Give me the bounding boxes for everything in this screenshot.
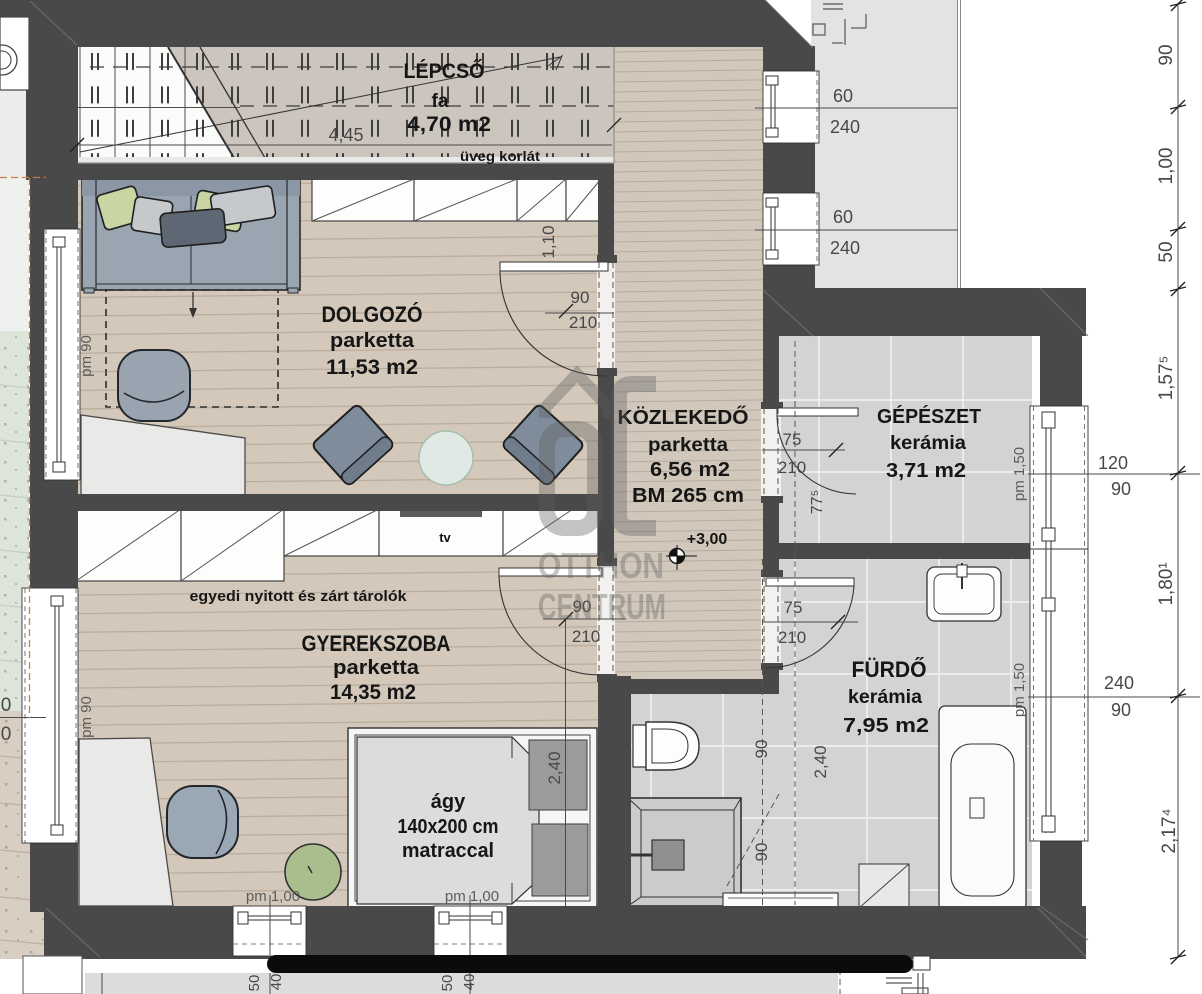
svg-text:7,95 m2: 7,95 m2 [843,715,929,737]
svg-text:BM 265 cm: BM 265 cm [632,485,744,507]
svg-text:kerámia: kerámia [848,687,922,708]
svg-text:DOLGOZÓ: DOLGOZÓ [322,302,423,327]
svg-text:75: 75 [783,430,802,449]
svg-text:CENTRUM: CENTRUM [538,586,666,627]
svg-text:parketta: parketta [333,657,420,679]
svg-text:4,70 m2: 4,70 m2 [407,113,491,136]
svg-text:140x200 cm: 140x200 cm [398,816,499,838]
svg-text:60: 60 [833,86,853,106]
svg-text:0: 0 [1,724,12,745]
svg-text:tv: tv [439,530,451,545]
svg-text:210: 210 [778,628,806,647]
svg-text:LÉPCSŐ: LÉPCSŐ [404,60,485,83]
svg-text:2,40: 2,40 [545,751,564,784]
svg-text:+3,00: +3,00 [687,531,728,548]
svg-text:2,17⁴: 2,17⁴ [1159,808,1180,853]
svg-text:60: 60 [833,207,853,227]
svg-text:14,35 m2: 14,35 m2 [330,681,416,704]
svg-text:90: 90 [752,843,771,862]
svg-text:90: 90 [1111,479,1131,499]
svg-text:40: 40 [268,974,285,991]
svg-text:77⁵: 77⁵ [809,490,826,514]
svg-text:210: 210 [778,458,806,477]
svg-text:240: 240 [830,238,860,258]
svg-text:pm 1,00: pm 1,00 [445,888,499,905]
svg-text:240: 240 [1104,673,1134,693]
svg-text:FÜRDŐ: FÜRDŐ [852,657,927,682]
svg-text:pm 90: pm 90 [78,335,95,377]
svg-text:parketta: parketta [648,435,728,456]
svg-text:90: 90 [1156,44,1177,65]
svg-text:50: 50 [1156,241,1177,262]
svg-text:1,10: 1,10 [539,225,558,258]
svg-text:kerámia: kerámia [890,433,966,454]
svg-text:parketta: parketta [330,330,415,352]
svg-text:210: 210 [569,313,597,332]
svg-text:fa: fa [432,91,449,112]
svg-text:GYEREKSZOBA: GYEREKSZOBA [302,631,451,656]
svg-text:210: 210 [572,627,600,646]
svg-text:1,00: 1,00 [1156,148,1177,185]
svg-text:pm 1,00: pm 1,00 [246,888,300,905]
svg-text:50: 50 [439,975,456,992]
svg-text:6,56 m2: 6,56 m2 [650,459,730,481]
svg-text:pm 1,50: pm 1,50 [1011,663,1028,717]
svg-text:üveg korlát: üveg korlát [460,148,540,164]
svg-text:90: 90 [571,288,590,307]
svg-text:90: 90 [752,740,771,759]
svg-text:2,40: 2,40 [811,745,830,778]
svg-text:0: 0 [1,695,12,716]
svg-text:240: 240 [830,117,860,137]
svg-text:KÖZLEKEDŐ: KÖZLEKEDŐ [618,406,749,429]
svg-text:50: 50 [246,975,263,992]
svg-text:90: 90 [1111,700,1131,720]
svg-text:GÉPÉSZET: GÉPÉSZET [877,405,981,428]
svg-text:pm 1,50: pm 1,50 [1011,447,1028,501]
svg-text:ágy: ágy [431,791,466,813]
svg-text:OTTHON: OTTHON [538,545,664,586]
svg-text:120: 120 [1098,453,1128,473]
svg-text:1,80¹: 1,80¹ [1156,562,1177,605]
svg-text:75: 75 [784,598,803,617]
svg-text:3,71 m2: 3,71 m2 [886,460,966,482]
svg-text:1,57⁵: 1,57⁵ [1156,356,1177,401]
svg-text:matraccal: matraccal [402,840,494,862]
svg-text:11,53 m2: 11,53 m2 [326,356,418,379]
svg-text:pm 90: pm 90 [78,696,95,738]
svg-text:4,45: 4,45 [328,125,363,145]
svg-text:egyedi nyitott és zárt tárolók: egyedi nyitott és zárt tárolók [190,589,408,605]
